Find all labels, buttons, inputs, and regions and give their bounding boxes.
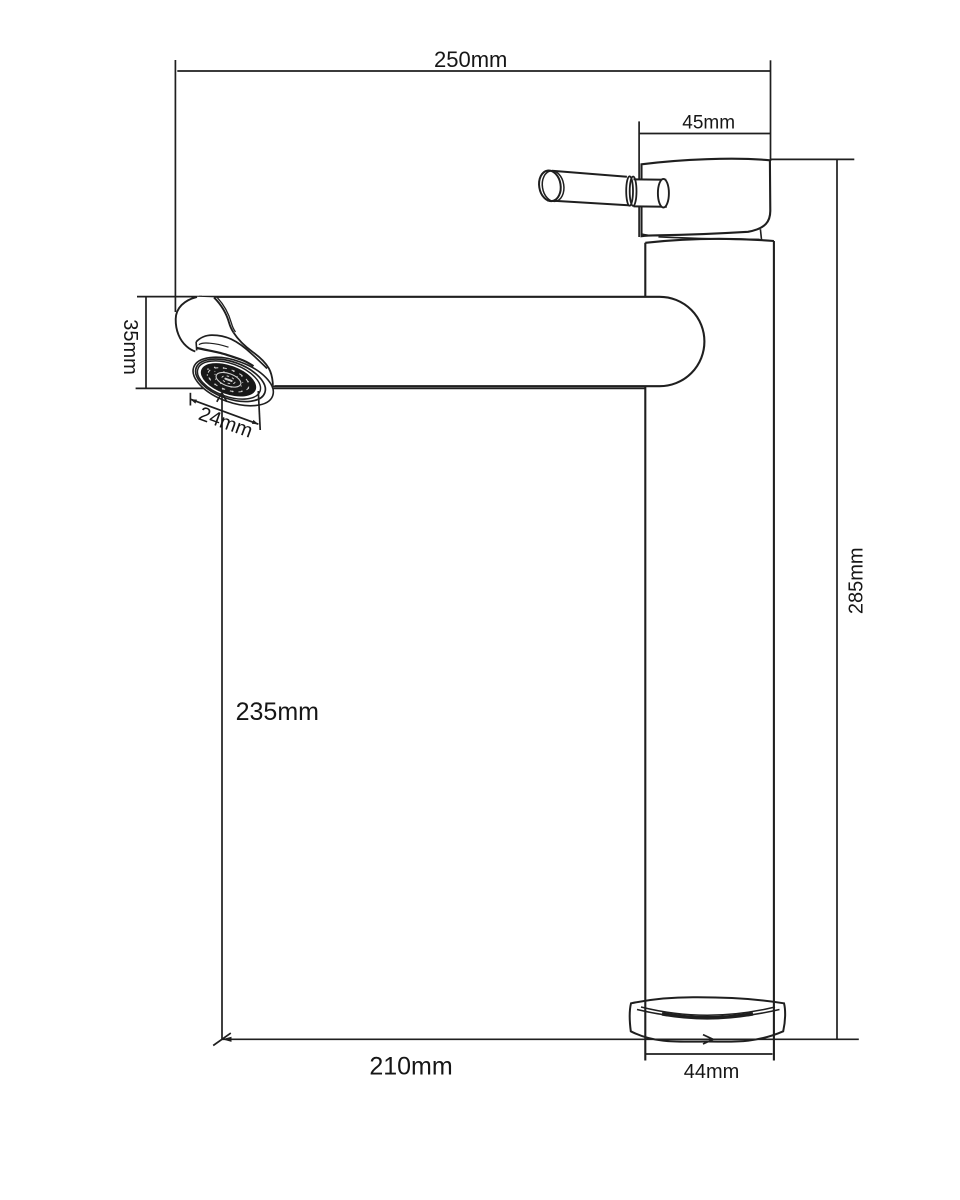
svg-text:285mm: 285mm bbox=[845, 547, 867, 614]
svg-text:45mm: 45mm bbox=[682, 113, 735, 134]
svg-text:210mm: 210mm bbox=[369, 1052, 452, 1080]
svg-text:44mm: 44mm bbox=[684, 1061, 740, 1083]
svg-text:24mm: 24mm bbox=[196, 403, 256, 443]
svg-text:235mm: 235mm bbox=[236, 698, 319, 726]
svg-text:250mm: 250mm bbox=[434, 47, 507, 72]
svg-text:35mm: 35mm bbox=[119, 319, 141, 375]
